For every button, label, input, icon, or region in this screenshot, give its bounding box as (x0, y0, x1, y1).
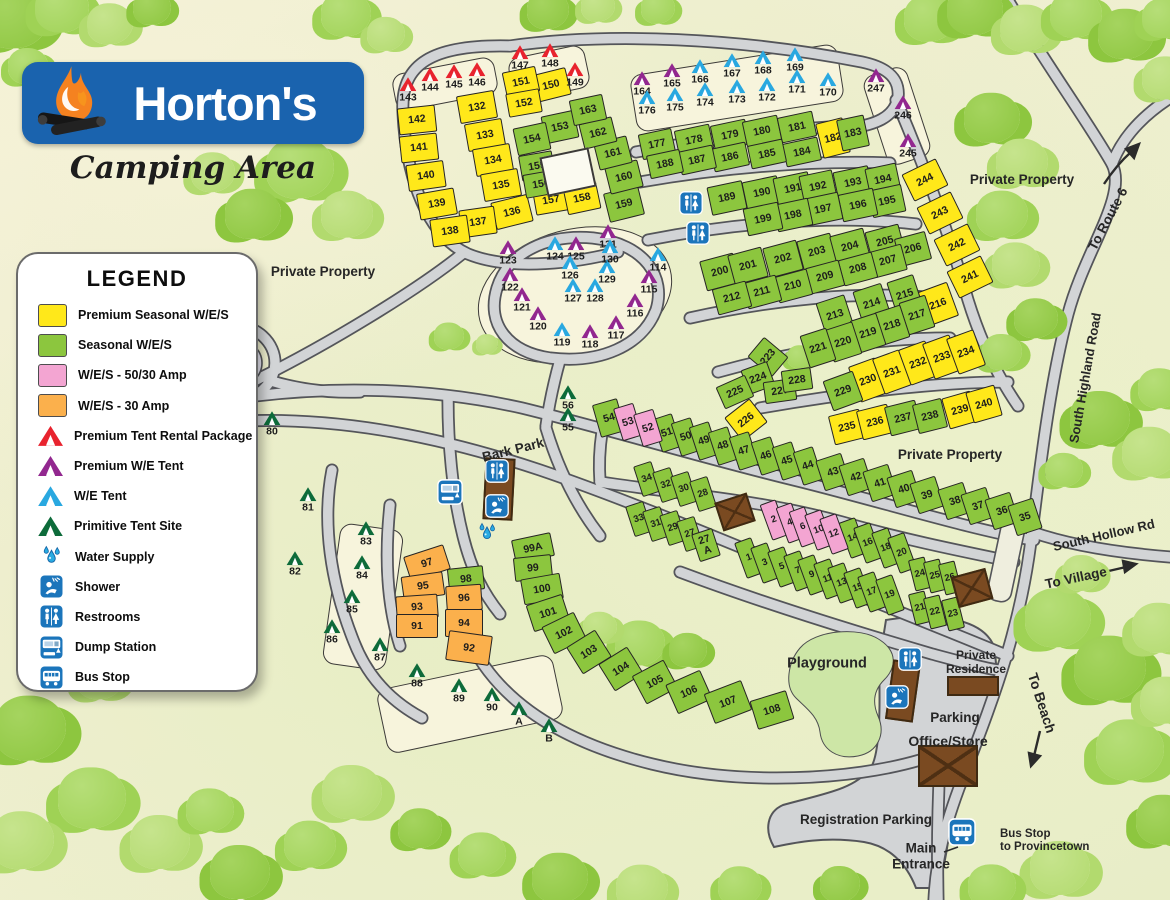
tent-site-number: 127 (564, 293, 582, 304)
tent-icon (409, 663, 426, 677)
tent-site-number: 121 (513, 302, 531, 313)
tent-icon (664, 63, 681, 77)
tent-site-number: 247 (867, 83, 885, 94)
tentsite-130: 130 (601, 239, 619, 265)
tree (527, 0, 569, 29)
tentsite-127: 127 (564, 278, 582, 304)
tent-site-number: 168 (754, 65, 772, 76)
tree (1138, 368, 1170, 408)
bus-icon (948, 818, 976, 846)
tree (186, 788, 234, 831)
tree (947, 0, 1003, 35)
tree (1050, 0, 1102, 37)
tentsite-B: B (541, 718, 558, 744)
legend-item-premium-tent-rental-package: Premium Tent Rental Package (18, 421, 256, 451)
site-28: 28 (689, 476, 717, 512)
map-label: Bus Stopto Provincetown (1000, 828, 1089, 854)
tent-icon (560, 407, 577, 421)
tent-site-number: 89 (453, 693, 465, 704)
tree (641, 0, 675, 23)
tree (87, 3, 133, 44)
legend-item-w-e-s-50-30-amp: W/E/S - 50/30 Amp (18, 360, 256, 390)
map-label: Private Property (970, 172, 1074, 188)
tent-site-number: 117 (608, 330, 625, 341)
tree (210, 845, 270, 899)
tent-icon (541, 718, 558, 732)
tree (458, 832, 506, 875)
legend-item-label: Restrooms (75, 610, 140, 624)
site-140: 140 (405, 160, 446, 192)
tent-icon (567, 62, 584, 76)
map-label: Parking (930, 710, 980, 726)
tree (225, 189, 281, 239)
tentsite-170: 170 (819, 72, 837, 98)
site-152: 152 (505, 88, 543, 118)
tree (322, 765, 382, 819)
tent-site-number: 55 (562, 422, 574, 433)
tent-site-number: 128 (586, 293, 604, 304)
tent-icon (530, 306, 547, 320)
map-label: Private Property (271, 264, 375, 280)
tent-icon (639, 90, 656, 104)
tent-icon (400, 77, 417, 91)
tent-site-number: 83 (360, 536, 372, 547)
tree (434, 323, 464, 350)
tentsite-168: 168 (754, 50, 772, 76)
tree (0, 696, 66, 761)
dump-icon (437, 479, 463, 505)
tent-icon (422, 67, 439, 81)
tentsite-165: 165 (663, 63, 681, 89)
tent-site-number: 172 (758, 92, 776, 103)
tree (1014, 298, 1058, 338)
tentsite-82: 82 (287, 551, 304, 577)
logo: Horton's (22, 62, 364, 144)
tree (1000, 5, 1052, 52)
tent-icon (264, 411, 281, 425)
tentsite-84: 84 (354, 555, 371, 581)
building (714, 492, 756, 531)
tent-site-number: 82 (289, 566, 301, 577)
tent-site-number: 120 (529, 321, 547, 332)
tent-site-number: 171 (788, 84, 806, 95)
legend-item-label: Premium W/E Tent (74, 459, 184, 473)
tent-icon (667, 87, 684, 101)
tent-icon (820, 72, 837, 86)
tree (284, 821, 336, 868)
tent-site-number: 147 (511, 60, 529, 71)
site-142: 142 (397, 105, 438, 136)
tentsite-171: 171 (788, 69, 806, 95)
tree (476, 334, 498, 354)
tent-site-number: 175 (666, 102, 684, 113)
legend-item-label: Seasonal W/E/S (78, 338, 172, 352)
tree (968, 864, 1016, 900)
legend-item-label: W/E Tent (74, 489, 127, 503)
tree (669, 633, 707, 667)
tentsite-117: 117 (608, 315, 625, 341)
tent-site-number: 84 (356, 570, 368, 581)
tree (964, 93, 1020, 143)
tentsite-246: 246 (894, 95, 912, 121)
tree (1142, 56, 1170, 99)
legend-swatch (38, 364, 67, 387)
campfire-icon (30, 63, 116, 143)
map-label: Office/Store (908, 733, 987, 749)
tent-site-number: 118 (582, 339, 599, 350)
legend-item-label: Water Supply (75, 550, 154, 564)
tent-icon (565, 278, 582, 292)
tent-icon (759, 77, 776, 91)
tentsite-55: 55 (560, 407, 577, 433)
tent-icon (692, 59, 709, 73)
tentsite-A: A (511, 701, 528, 727)
tent-site-number: 80 (266, 426, 278, 437)
site-138: 138 (429, 214, 471, 247)
legend-item-premium-seasonal-w-e-s: Premium Seasonal W/E/S (18, 300, 256, 330)
tent-icon (372, 637, 389, 651)
tree (321, 191, 373, 238)
logo-title: Horton's (133, 76, 346, 131)
tent-icon (38, 456, 63, 476)
tent-site-number: 149 (566, 77, 584, 88)
shower-icon (38, 574, 64, 599)
tent-icon (547, 236, 564, 250)
tentsite-116: 116 (627, 293, 644, 319)
logo-subtitle: Camping Area (22, 150, 364, 186)
legend-item-w-e-tent: W/E Tent (18, 481, 256, 511)
tree (35, 0, 89, 32)
water-icon (38, 544, 64, 569)
tent-icon (512, 45, 529, 59)
tent-icon (560, 385, 577, 399)
tentsite-87: 87 (372, 637, 389, 663)
tent-icon (358, 521, 375, 535)
tentsite-114: 114 (650, 247, 667, 273)
map-label: MainEntrance (892, 840, 950, 871)
tree (616, 865, 668, 900)
legend-item-label: W/E/S - 30 Amp (78, 399, 169, 413)
tentsite-126: 126 (561, 255, 579, 281)
tentsite-174: 174 (696, 82, 714, 108)
site-92: 92 (445, 630, 493, 666)
tent-site-number: 245 (899, 148, 917, 159)
restroom-icon (38, 604, 64, 629)
tent-icon (446, 64, 463, 78)
legend-item-w-e-s-30-amp: W/E/S - 30 Amp (18, 391, 256, 421)
legend-item-label: Primitive Tent Site (74, 519, 182, 533)
tent-site-number: 170 (819, 87, 837, 98)
map-label: Registration Parking (800, 812, 932, 828)
tentsite-175: 175 (666, 87, 684, 113)
tentsite-149: 149 (566, 62, 584, 88)
tent-icon (895, 95, 912, 109)
tree (976, 191, 1028, 238)
dump-icon (38, 635, 64, 660)
tent-site-number: 114 (650, 262, 667, 273)
legend-item-label: W/E/S - 50/30 Amp (78, 368, 187, 382)
site-107: 107 (704, 680, 753, 724)
water-icon (475, 521, 499, 545)
tentsite-167: 167 (723, 53, 741, 79)
tentsite-88: 88 (409, 663, 426, 689)
building (947, 676, 999, 696)
tent-icon (38, 486, 63, 506)
map-label: Playground (787, 656, 867, 673)
tent-icon (500, 240, 517, 254)
tentsite-144: 144 (421, 67, 439, 93)
tree (532, 853, 588, 900)
tent-icon (755, 50, 772, 64)
legend-item-seasonal-w-e-s: Seasonal W/E/S (18, 330, 256, 360)
bus-icon (38, 665, 64, 690)
site-228: 228 (781, 367, 814, 393)
tent-site-number: 129 (598, 274, 616, 285)
tent-icon (344, 589, 361, 603)
tentsite-118: 118 (582, 324, 599, 350)
legend-swatch (38, 334, 67, 357)
tent-site-number: 90 (486, 702, 498, 713)
site-108: 108 (749, 690, 794, 730)
tent-icon (300, 487, 317, 501)
tent-icon (608, 315, 625, 329)
site-19: 19 (875, 574, 905, 616)
legend-item-shower: Shower (18, 572, 256, 602)
site-27A: 27 A (691, 528, 721, 562)
tent-icon (502, 267, 519, 281)
tent-icon (554, 322, 571, 336)
map-label: PrivateResidence (946, 649, 1006, 677)
tentsite-247: 247 (867, 68, 885, 94)
tentsite-176: 176 (638, 90, 656, 116)
legend-item-label: Premium Seasonal W/E/S (78, 308, 229, 322)
tentsite-89: 89 (451, 678, 468, 704)
legend-item-label: Shower (75, 580, 120, 594)
tree (58, 767, 126, 828)
tent-icon (697, 82, 714, 96)
tent-icon (650, 247, 667, 261)
legend-item-bus-stop: Bus Stop (18, 662, 256, 692)
tent-icon (568, 236, 585, 250)
tent-icon (354, 555, 371, 569)
legend-item-water-supply: Water Supply (18, 542, 256, 572)
tent-icon (511, 701, 528, 715)
legend-swatch (38, 394, 67, 417)
legend-item-dump-station: Dump Station (18, 632, 256, 662)
tent-icon (900, 133, 917, 147)
tent-site-number: 119 (554, 337, 571, 348)
tree (321, 0, 371, 37)
legend-item-label: Premium Tent Rental Package (74, 429, 252, 443)
tree (130, 815, 190, 869)
tent-site-number: 143 (399, 92, 417, 103)
tree (1140, 677, 1170, 724)
tentsite-145: 145 (445, 64, 463, 90)
legend-item-label: Dump Station (75, 640, 156, 654)
site-183: 183 (836, 114, 870, 151)
map-label: Private Property (898, 447, 1002, 463)
shower-icon (885, 685, 909, 709)
tent-icon (724, 53, 741, 67)
tentsite-146: 146 (468, 62, 486, 88)
tentsite-173: 173 (728, 79, 746, 105)
legend-item-label: Bus Stop (75, 670, 130, 684)
restroom-icon (898, 647, 922, 671)
tent-icon (38, 516, 63, 536)
site-52: 52 (633, 409, 663, 448)
tree (1074, 636, 1146, 701)
tentsite-166: 166 (691, 59, 709, 85)
tent-site-number: 146 (468, 77, 486, 88)
tree (1122, 427, 1170, 477)
tent-site-number: A (515, 716, 523, 727)
tree (0, 811, 54, 869)
tent-site-number: 167 (723, 68, 741, 79)
tent-site-number: 88 (411, 678, 423, 689)
tentsite-172: 172 (758, 77, 776, 103)
tentsite-120: 120 (529, 306, 547, 332)
tent-site-number: 176 (638, 105, 656, 116)
legend-swatch (38, 304, 67, 327)
tentsite-83: 83 (358, 521, 375, 547)
tree (367, 17, 405, 51)
tent-site-number: 174 (696, 97, 714, 108)
tree (1132, 603, 1170, 653)
tent-icon (542, 43, 559, 57)
tentsite-148: 148 (541, 43, 559, 69)
tent-icon (602, 239, 619, 253)
tent-icon (451, 678, 468, 692)
tent-site-number: 144 (421, 82, 439, 93)
legend-title: LEGEND (18, 266, 256, 292)
map-label: To Route 6 (1085, 185, 1131, 253)
tent-icon (287, 551, 304, 565)
tree (1096, 719, 1164, 780)
map-label: South Hollow Rd (1052, 517, 1157, 555)
tentsite-86: 86 (324, 619, 341, 645)
tent-icon (627, 293, 644, 307)
site-35: 35 (1007, 498, 1043, 537)
tree (992, 242, 1040, 285)
tentsite-123: 123 (499, 240, 517, 266)
tent-site-number: 115 (641, 284, 658, 295)
tent-icon (324, 619, 341, 633)
tent-icon (787, 47, 804, 61)
tree (982, 334, 1022, 370)
tree (1142, 0, 1170, 38)
tentsite-245: 245 (899, 133, 917, 159)
tent-site-number: 246 (894, 110, 912, 121)
tree (1025, 588, 1091, 647)
tentsite-147: 147 (511, 45, 529, 71)
tentsite-143: 143 (399, 77, 417, 103)
legend-item-restrooms: Restrooms (18, 602, 256, 632)
legend-panel: LEGEND Premium Seasonal W/E/SSeasonal W/… (16, 252, 258, 692)
tent-icon (729, 79, 746, 93)
tent-icon (600, 224, 617, 238)
tent-icon (868, 68, 885, 82)
tree (581, 0, 615, 21)
tentsite-80: 80 (264, 411, 281, 437)
tent-icon (469, 62, 486, 76)
tent-site-number: 116 (627, 308, 644, 319)
tent-icon (634, 71, 651, 85)
restroom-icon (686, 221, 710, 245)
tent-site-number: B (545, 733, 553, 744)
legend-items: Premium Seasonal W/E/SSeasonal W/E/SW/E/… (18, 300, 256, 692)
tent-site-number: 87 (374, 652, 386, 663)
shower-icon (485, 494, 509, 518)
tree (398, 808, 442, 848)
legend-item-premium-w-e-tent: Premium W/E Tent (18, 451, 256, 481)
tentsite-119: 119 (554, 322, 571, 348)
tent-icon (582, 324, 599, 338)
tentsite-90: 90 (484, 687, 501, 713)
map-label: To Beach (1025, 671, 1059, 735)
tree (1136, 795, 1170, 845)
campground-map: 1321331341351361371381391401411421501511… (0, 0, 1170, 900)
tent-icon (562, 255, 579, 269)
building (918, 745, 978, 787)
tent-site-number: 173 (728, 94, 746, 105)
tent-site-number: 130 (601, 254, 619, 265)
tentsite-85: 85 (344, 589, 361, 615)
tree (1045, 453, 1083, 487)
tent-icon (514, 287, 531, 301)
site-141: 141 (399, 133, 440, 164)
site-96: 96 (445, 584, 483, 612)
tent-site-number: 86 (326, 634, 338, 645)
tent-icon (38, 426, 63, 446)
tentsite-121: 121 (513, 287, 531, 313)
tent-site-number: 85 (346, 604, 358, 615)
tent-icon (789, 69, 806, 83)
tree (718, 866, 762, 900)
tent-site-number: 81 (302, 502, 314, 513)
tent-site-number: 148 (541, 58, 559, 69)
tentsite-81: 81 (300, 487, 317, 513)
tree (820, 866, 860, 900)
tent-site-number: 145 (445, 79, 463, 90)
restroom-icon (679, 191, 703, 215)
legend-item-primitive-tent-site: Primitive Tent Site (18, 511, 256, 541)
tent-site-number: 123 (499, 255, 517, 266)
site-91: 91 (396, 614, 438, 638)
tent-icon (484, 687, 501, 701)
tree (133, 0, 171, 25)
